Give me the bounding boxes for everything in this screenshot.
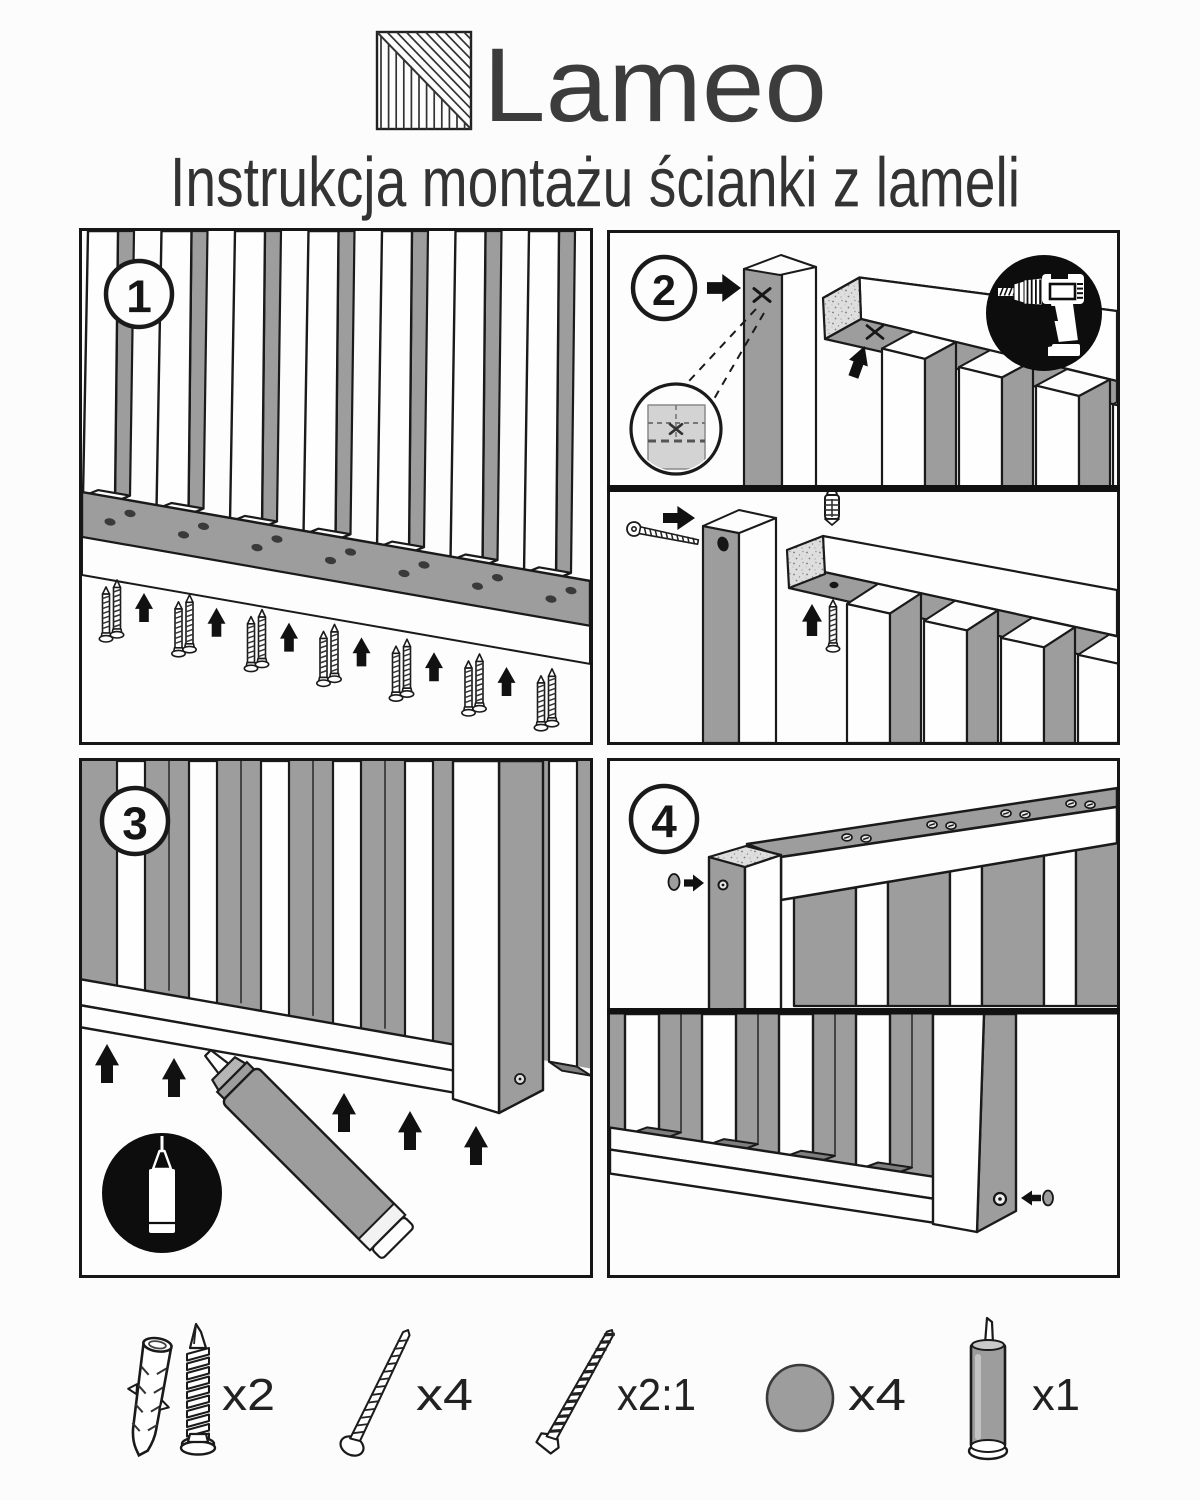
svg-text:x2:1: x2:1	[617, 1369, 696, 1420]
svg-text:x2: x2	[222, 1369, 275, 1420]
svg-text:x4: x4	[416, 1369, 473, 1420]
svg-text:Lameo: Lameo	[483, 27, 827, 144]
svg-text:x1: x1	[1032, 1369, 1080, 1420]
svg-text:3: 3	[122, 797, 148, 849]
svg-text:4: 4	[651, 795, 677, 847]
svg-text:1: 1	[126, 270, 152, 322]
svg-text:2: 2	[652, 267, 676, 315]
svg-text:Instrukcja montażu ścianki z l: Instrukcja montażu ścianki z lameli	[170, 143, 1020, 221]
svg-text:x4: x4	[848, 1369, 906, 1420]
